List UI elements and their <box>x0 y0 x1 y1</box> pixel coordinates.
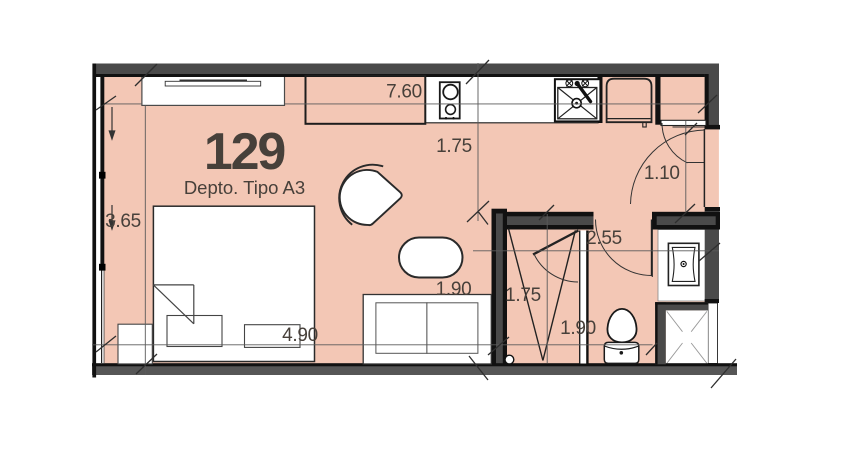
svg-text:4.90: 4.90 <box>282 325 318 346</box>
svg-text:3.65: 3.65 <box>105 211 141 232</box>
svg-text:7.60: 7.60 <box>386 81 422 102</box>
svg-text:Depto. Tipo A3: Depto. Tipo A3 <box>184 177 305 198</box>
svg-text:2.55: 2.55 <box>586 228 622 249</box>
svg-text:1.90: 1.90 <box>436 279 472 300</box>
svg-text:1.75: 1.75 <box>505 285 541 306</box>
svg-text:129: 129 <box>204 123 284 181</box>
svg-text:1.10: 1.10 <box>644 163 680 184</box>
svg-text:1.75: 1.75 <box>436 136 472 157</box>
svg-text:1.90: 1.90 <box>560 318 596 339</box>
